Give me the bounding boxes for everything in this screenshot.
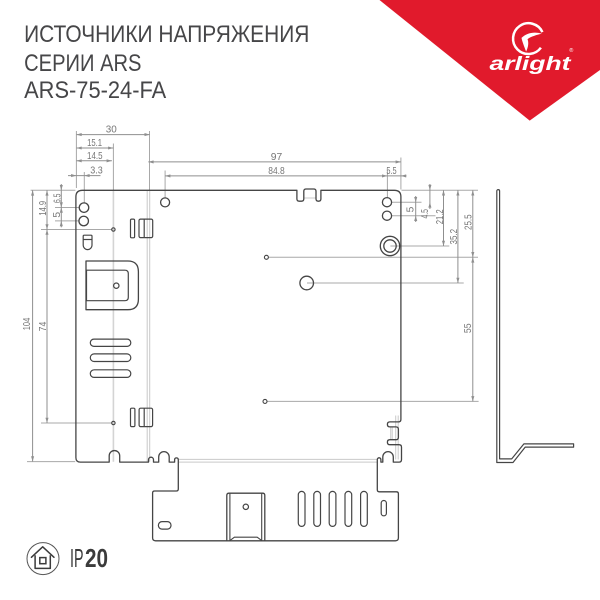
svg-text:104: 104 [22, 318, 33, 331]
svg-text:35.2: 35.2 [449, 229, 460, 245]
svg-text:30: 30 [106, 125, 117, 136]
svg-text:arlight: arlight [490, 54, 572, 75]
svg-text:97: 97 [271, 152, 283, 163]
svg-text:5: 5 [406, 206, 417, 212]
svg-text:15.1: 15.1 [87, 138, 102, 149]
svg-text:5.5: 5.5 [386, 166, 396, 177]
svg-text:14.9: 14.9 [38, 201, 49, 216]
svg-text:21.2: 21.2 [435, 209, 446, 224]
svg-text:®: ® [569, 47, 573, 54]
svg-text:3.3: 3.3 [90, 166, 103, 177]
svg-text:5: 5 [52, 212, 63, 218]
svg-text:14.5: 14.5 [87, 151, 103, 162]
svg-text:84.8: 84.8 [268, 166, 285, 177]
svg-text:ИСТОЧНИКИ НАПРЯЖЕНИЯ: ИСТОЧНИКИ НАПРЯЖЕНИЯ [24, 21, 309, 48]
svg-text:74: 74 [38, 321, 49, 331]
svg-text:СЕРИИ ARS: СЕРИИ ARS [24, 50, 141, 77]
svg-text:25.5: 25.5 [463, 214, 474, 230]
svg-text:55: 55 [463, 323, 474, 333]
svg-text:IP: IP [70, 543, 84, 573]
svg-text:6.5: 6.5 [52, 193, 63, 203]
svg-text:4.5: 4.5 [420, 209, 431, 219]
svg-text:ARS-75-24-FA: ARS-75-24-FA [24, 77, 167, 104]
svg-text:20: 20 [85, 543, 108, 573]
